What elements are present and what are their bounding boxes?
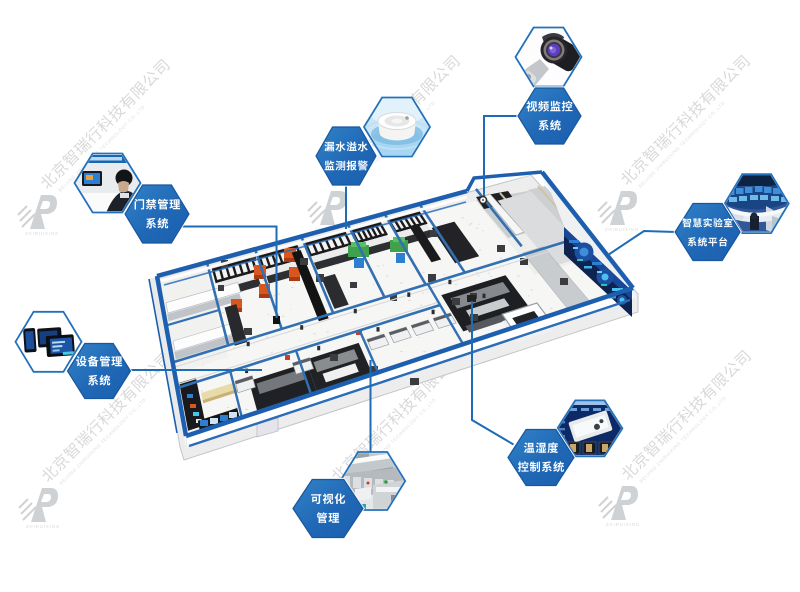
svg-text:ZHIRUIXING: ZHIRUIXING — [26, 524, 60, 529]
svg-text:BEIJING ZHIRUIXING TECHNOLOGY: BEIJING ZHIRUIXING TECHNOLOGY CO.,LTD — [639, 395, 728, 484]
svg-text:ZHIRUIXING: ZHIRUIXING — [25, 231, 59, 236]
svg-text:BEIJING ZHIRUIXING TECHNOLOGY: BEIJING ZHIRUIXING TECHNOLOGY CO.,LTD — [59, 397, 148, 486]
svg-text:ZHIRUIXING: ZHIRUIXING — [606, 522, 640, 527]
svg-text:BEIJING ZHIRUIXING TECHNOLOGY: BEIJING ZHIRUIXING TECHNOLOGY CO.,LTD — [638, 100, 727, 189]
svg-text:ZHIRUIXING: ZHIRUIXING — [605, 227, 639, 232]
